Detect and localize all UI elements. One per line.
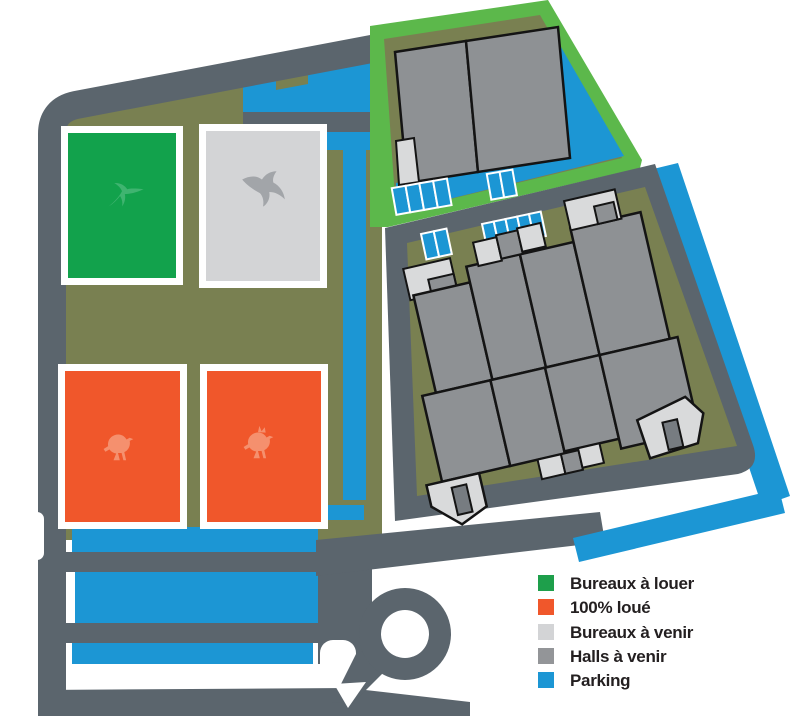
- legend-swatch-blue: [538, 672, 554, 688]
- legend-label: Bureaux à venir: [570, 623, 694, 642]
- roundabout-center: [381, 610, 429, 658]
- legend-label: Halls à venir: [570, 647, 667, 666]
- south-parking-strip-1: [72, 527, 318, 552]
- hall-section: [466, 27, 570, 172]
- legend-swatch-orange: [538, 599, 554, 615]
- legend-item-bureaux-a-venir: Bureaux à venir: [538, 623, 694, 642]
- building-fill: [206, 131, 320, 281]
- legend-item-parking: Parking: [538, 671, 630, 690]
- legend-item-100-loue: 100% loué: [538, 598, 650, 617]
- office-building-green[interactable]: [61, 126, 183, 285]
- parking-stalls-c: [421, 229, 452, 260]
- legend-label: Parking: [570, 671, 630, 690]
- parking-stalls-b: [487, 170, 517, 200]
- office-building-orange-2[interactable]: [200, 364, 328, 529]
- legend-label: 100% loué: [570, 598, 650, 617]
- legend-item-bureaux-a-louer: Bureaux à louer: [538, 574, 695, 593]
- legend-label: Bureaux à louer: [570, 574, 695, 593]
- site-plan-svg: Bureaux à louer 100% loué Bureaux à veni…: [0, 0, 796, 716]
- north-plot-building[interactable]: [395, 27, 570, 185]
- legend: Bureaux à louer 100% loué Bureaux à veni…: [538, 574, 695, 690]
- loading-dock: [578, 443, 604, 467]
- parking-patch-south: [328, 505, 364, 520]
- site-plan: Bureaux à louer 100% loué Bureaux à veni…: [0, 0, 796, 716]
- hall-entrance: [396, 138, 419, 185]
- loading-dock: [517, 223, 546, 252]
- office-building-orange-1[interactable]: [58, 364, 187, 529]
- east-parking-column: [343, 150, 366, 500]
- road-notch: [30, 512, 44, 560]
- office-building-gray[interactable]: [199, 124, 327, 288]
- south-road: [40, 688, 470, 716]
- legend-item-halls-a-venir: Halls à venir: [538, 647, 667, 666]
- south-plot-parking-south: [573, 489, 785, 562]
- south-plot: [371, 163, 790, 562]
- legend-swatch-gray: [538, 648, 554, 664]
- legend-swatch-green: [538, 575, 554, 591]
- hall-entrance-notch: [594, 202, 618, 224]
- building-fill: [68, 133, 176, 278]
- south-parking-strip-2: [75, 572, 318, 623]
- legend-swatch-lightgray: [538, 624, 554, 640]
